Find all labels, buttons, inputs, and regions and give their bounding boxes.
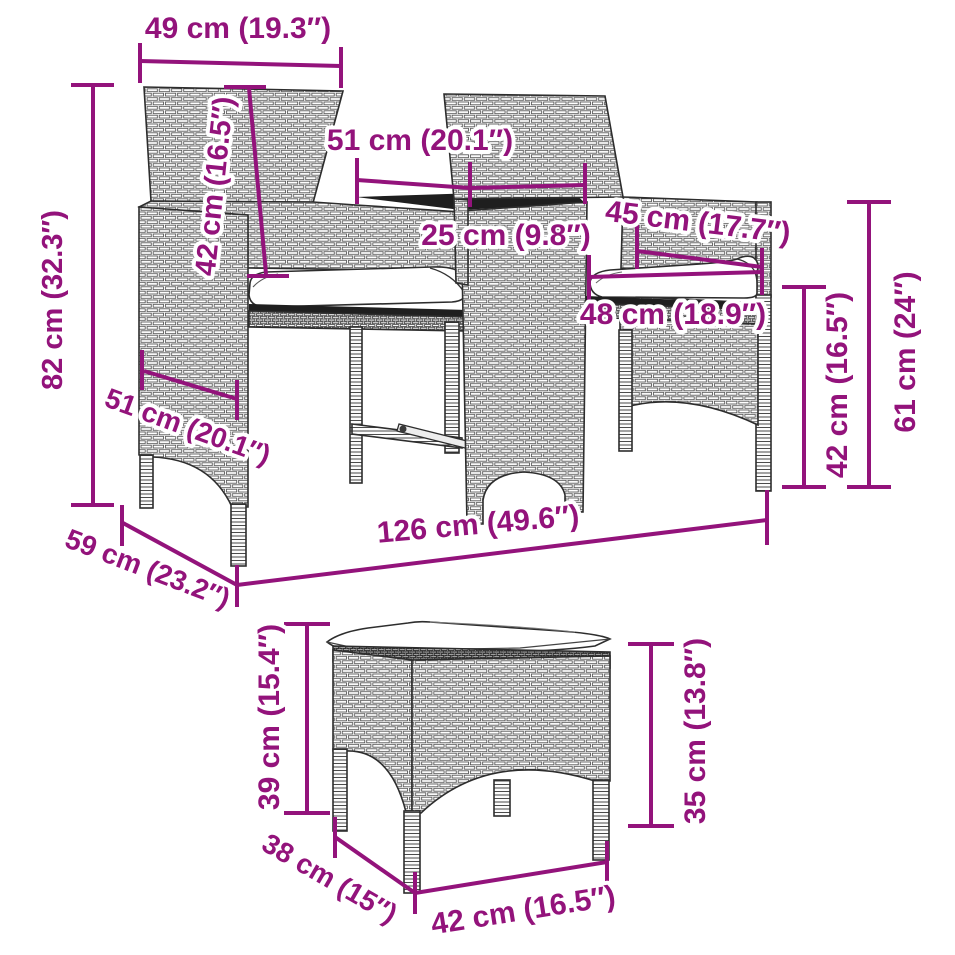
svg-text:39 cm (15.4″): 39 cm (15.4″) <box>253 624 286 810</box>
svg-text:42 cm (16.5″): 42 cm (16.5″) <box>821 292 854 478</box>
svg-text:48 cm (18.9″): 48 cm (18.9″) <box>580 298 766 331</box>
svg-text:51 cm (20.1″): 51 cm (20.1″) <box>327 124 513 157</box>
svg-text:35 cm (13.8″): 35 cm (13.8″) <box>679 638 712 824</box>
svg-text:38 cm (15″): 38 cm (15″) <box>257 827 403 929</box>
svg-text:49 cm (19.3″): 49 cm (19.3″) <box>145 12 331 45</box>
svg-text:82 cm (32.3″): 82 cm (32.3″) <box>37 210 69 390</box>
svg-text:61 cm (24″): 61 cm (24″) <box>889 271 922 432</box>
svg-text:42 cm (16.5″): 42 cm (16.5″) <box>429 880 618 942</box>
svg-text:25 cm (9.8″): 25 cm (9.8″) <box>421 219 590 252</box>
